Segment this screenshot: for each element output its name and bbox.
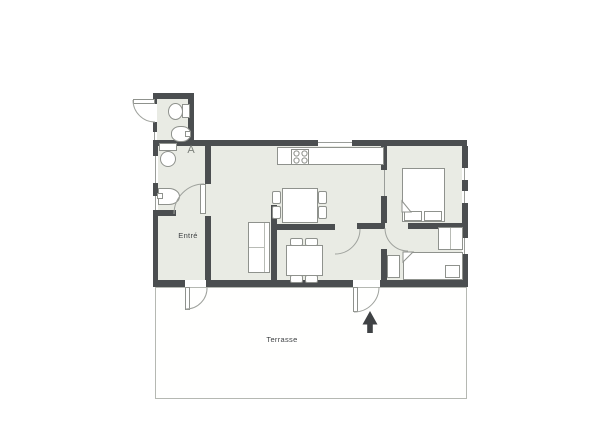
door-swing-arc bbox=[133, 100, 155, 122]
door-swing-arc bbox=[186, 287, 207, 309]
burner-icon bbox=[294, 151, 299, 156]
burner-icon bbox=[294, 158, 299, 163]
door-swing-arc bbox=[354, 287, 379, 312]
door-swing-arc bbox=[174, 184, 204, 214]
door-swing-arc bbox=[335, 229, 360, 254]
burner-icon bbox=[302, 151, 307, 156]
door-swing-arc bbox=[385, 228, 408, 251]
north-arrow-icon bbox=[363, 311, 378, 333]
burner-icon bbox=[302, 158, 307, 163]
blanket-fold bbox=[403, 252, 413, 262]
blanket-fold bbox=[402, 201, 411, 212]
plan-linework-overlay bbox=[0, 0, 600, 424]
floor-plan-canvas: Terrasse bbox=[0, 0, 600, 424]
